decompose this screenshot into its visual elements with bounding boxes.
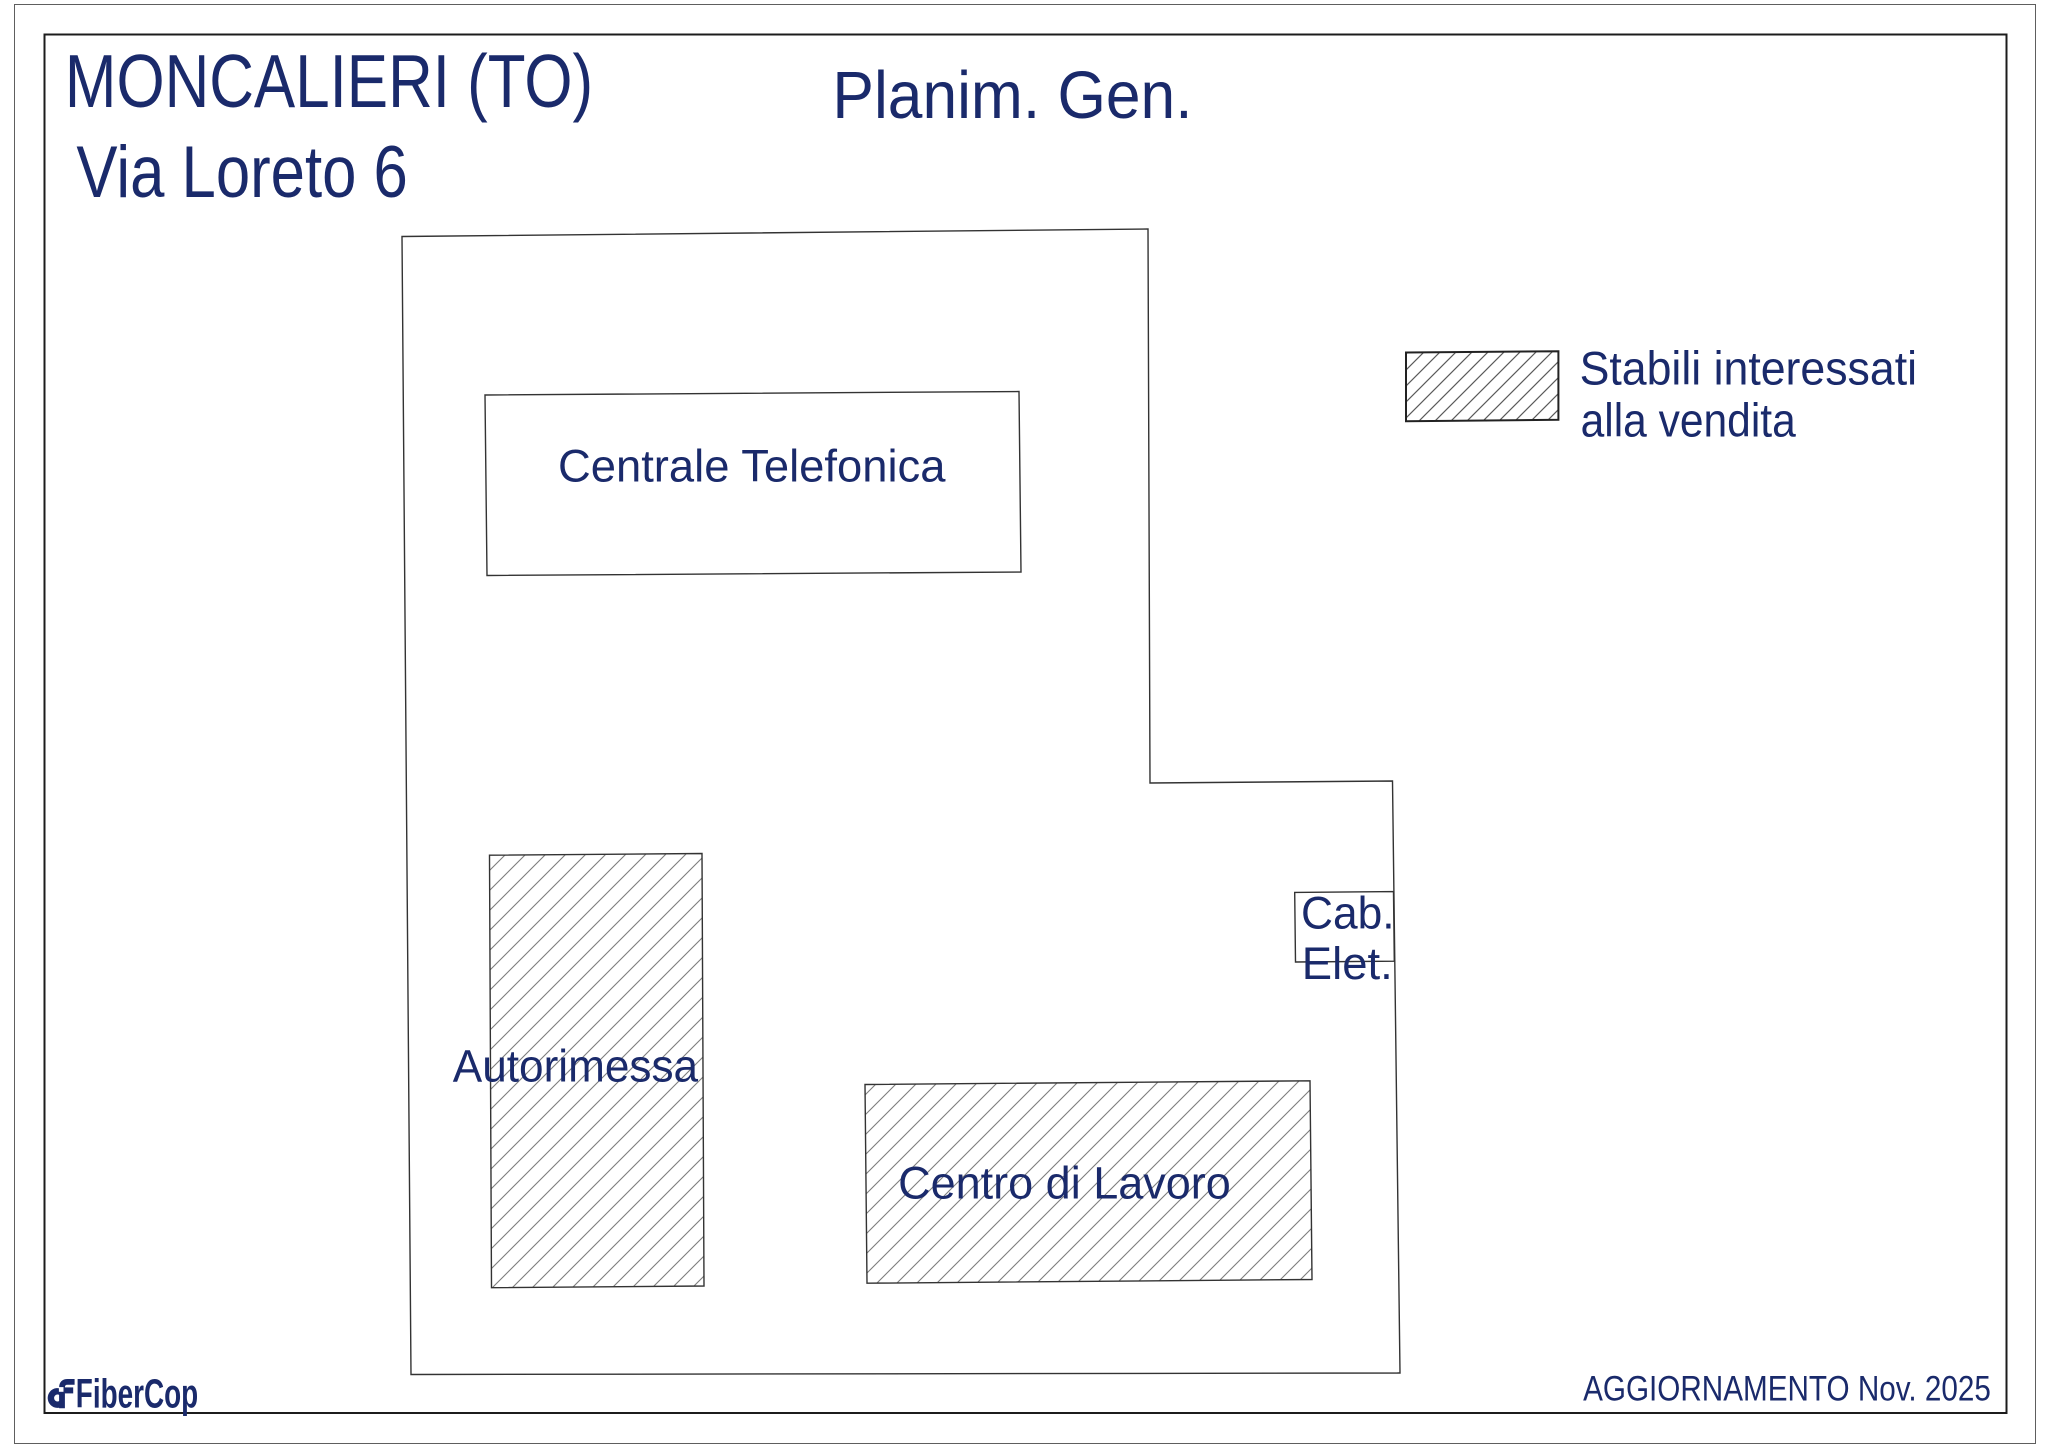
svg-text:Stabili interessati: Stabili interessati bbox=[1580, 342, 1917, 394]
svg-text:AGGIORNAMENTO Nov. 2025: AGGIORNAMENTO Nov. 2025 bbox=[1583, 1369, 1991, 1408]
svg-text:Elet.: Elet. bbox=[1302, 938, 1393, 989]
svg-text:Via Loreto 6: Via Loreto 6 bbox=[76, 132, 407, 213]
svg-text:Centro di Lavoro: Centro di Lavoro bbox=[898, 1158, 1231, 1209]
svg-text:Centrale Telefonica: Centrale Telefonica bbox=[558, 441, 946, 492]
svg-text:MONCALIERI (TO): MONCALIERI (TO) bbox=[65, 39, 593, 123]
svg-text:alla vendita: alla vendita bbox=[1581, 395, 1796, 447]
svg-text:Planim. Gen.: Planim. Gen. bbox=[832, 57, 1192, 133]
svg-text:FiberCop: FiberCop bbox=[76, 1371, 198, 1417]
svg-text:Autorimessa: Autorimessa bbox=[453, 1042, 698, 1091]
svg-text:Cab.: Cab. bbox=[1301, 889, 1395, 938]
